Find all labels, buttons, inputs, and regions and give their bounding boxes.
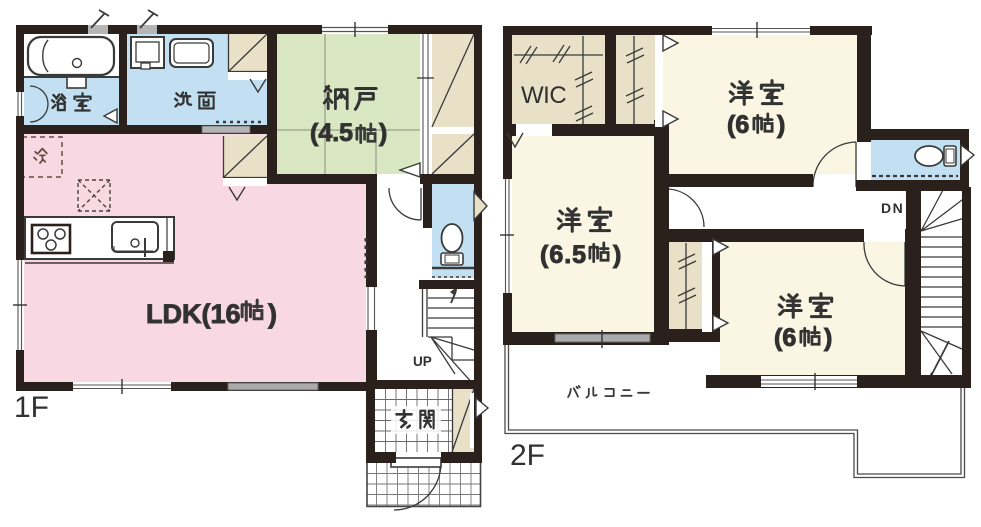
svg-text:): ) [824,324,832,352]
svg-text:1F: 1F [14,391,49,424]
svg-text:UP: UP [413,354,432,369]
svg-text:): ) [613,241,621,269]
svg-text:LDK(16: LDK(16 [146,299,241,329]
svg-text:): ) [268,299,277,329]
svg-text:(6: (6 [727,111,749,139]
svg-text:): ) [777,111,785,139]
svg-text:): ) [379,119,387,147]
svg-text:(6.5: (6.5 [540,241,587,269]
svg-text:DN: DN [881,200,904,216]
svg-text:WIC: WIC [521,82,566,109]
svg-text:2F: 2F [510,439,545,472]
svg-text:(6: (6 [774,324,796,352]
svg-text:(4.5: (4.5 [310,119,353,147]
